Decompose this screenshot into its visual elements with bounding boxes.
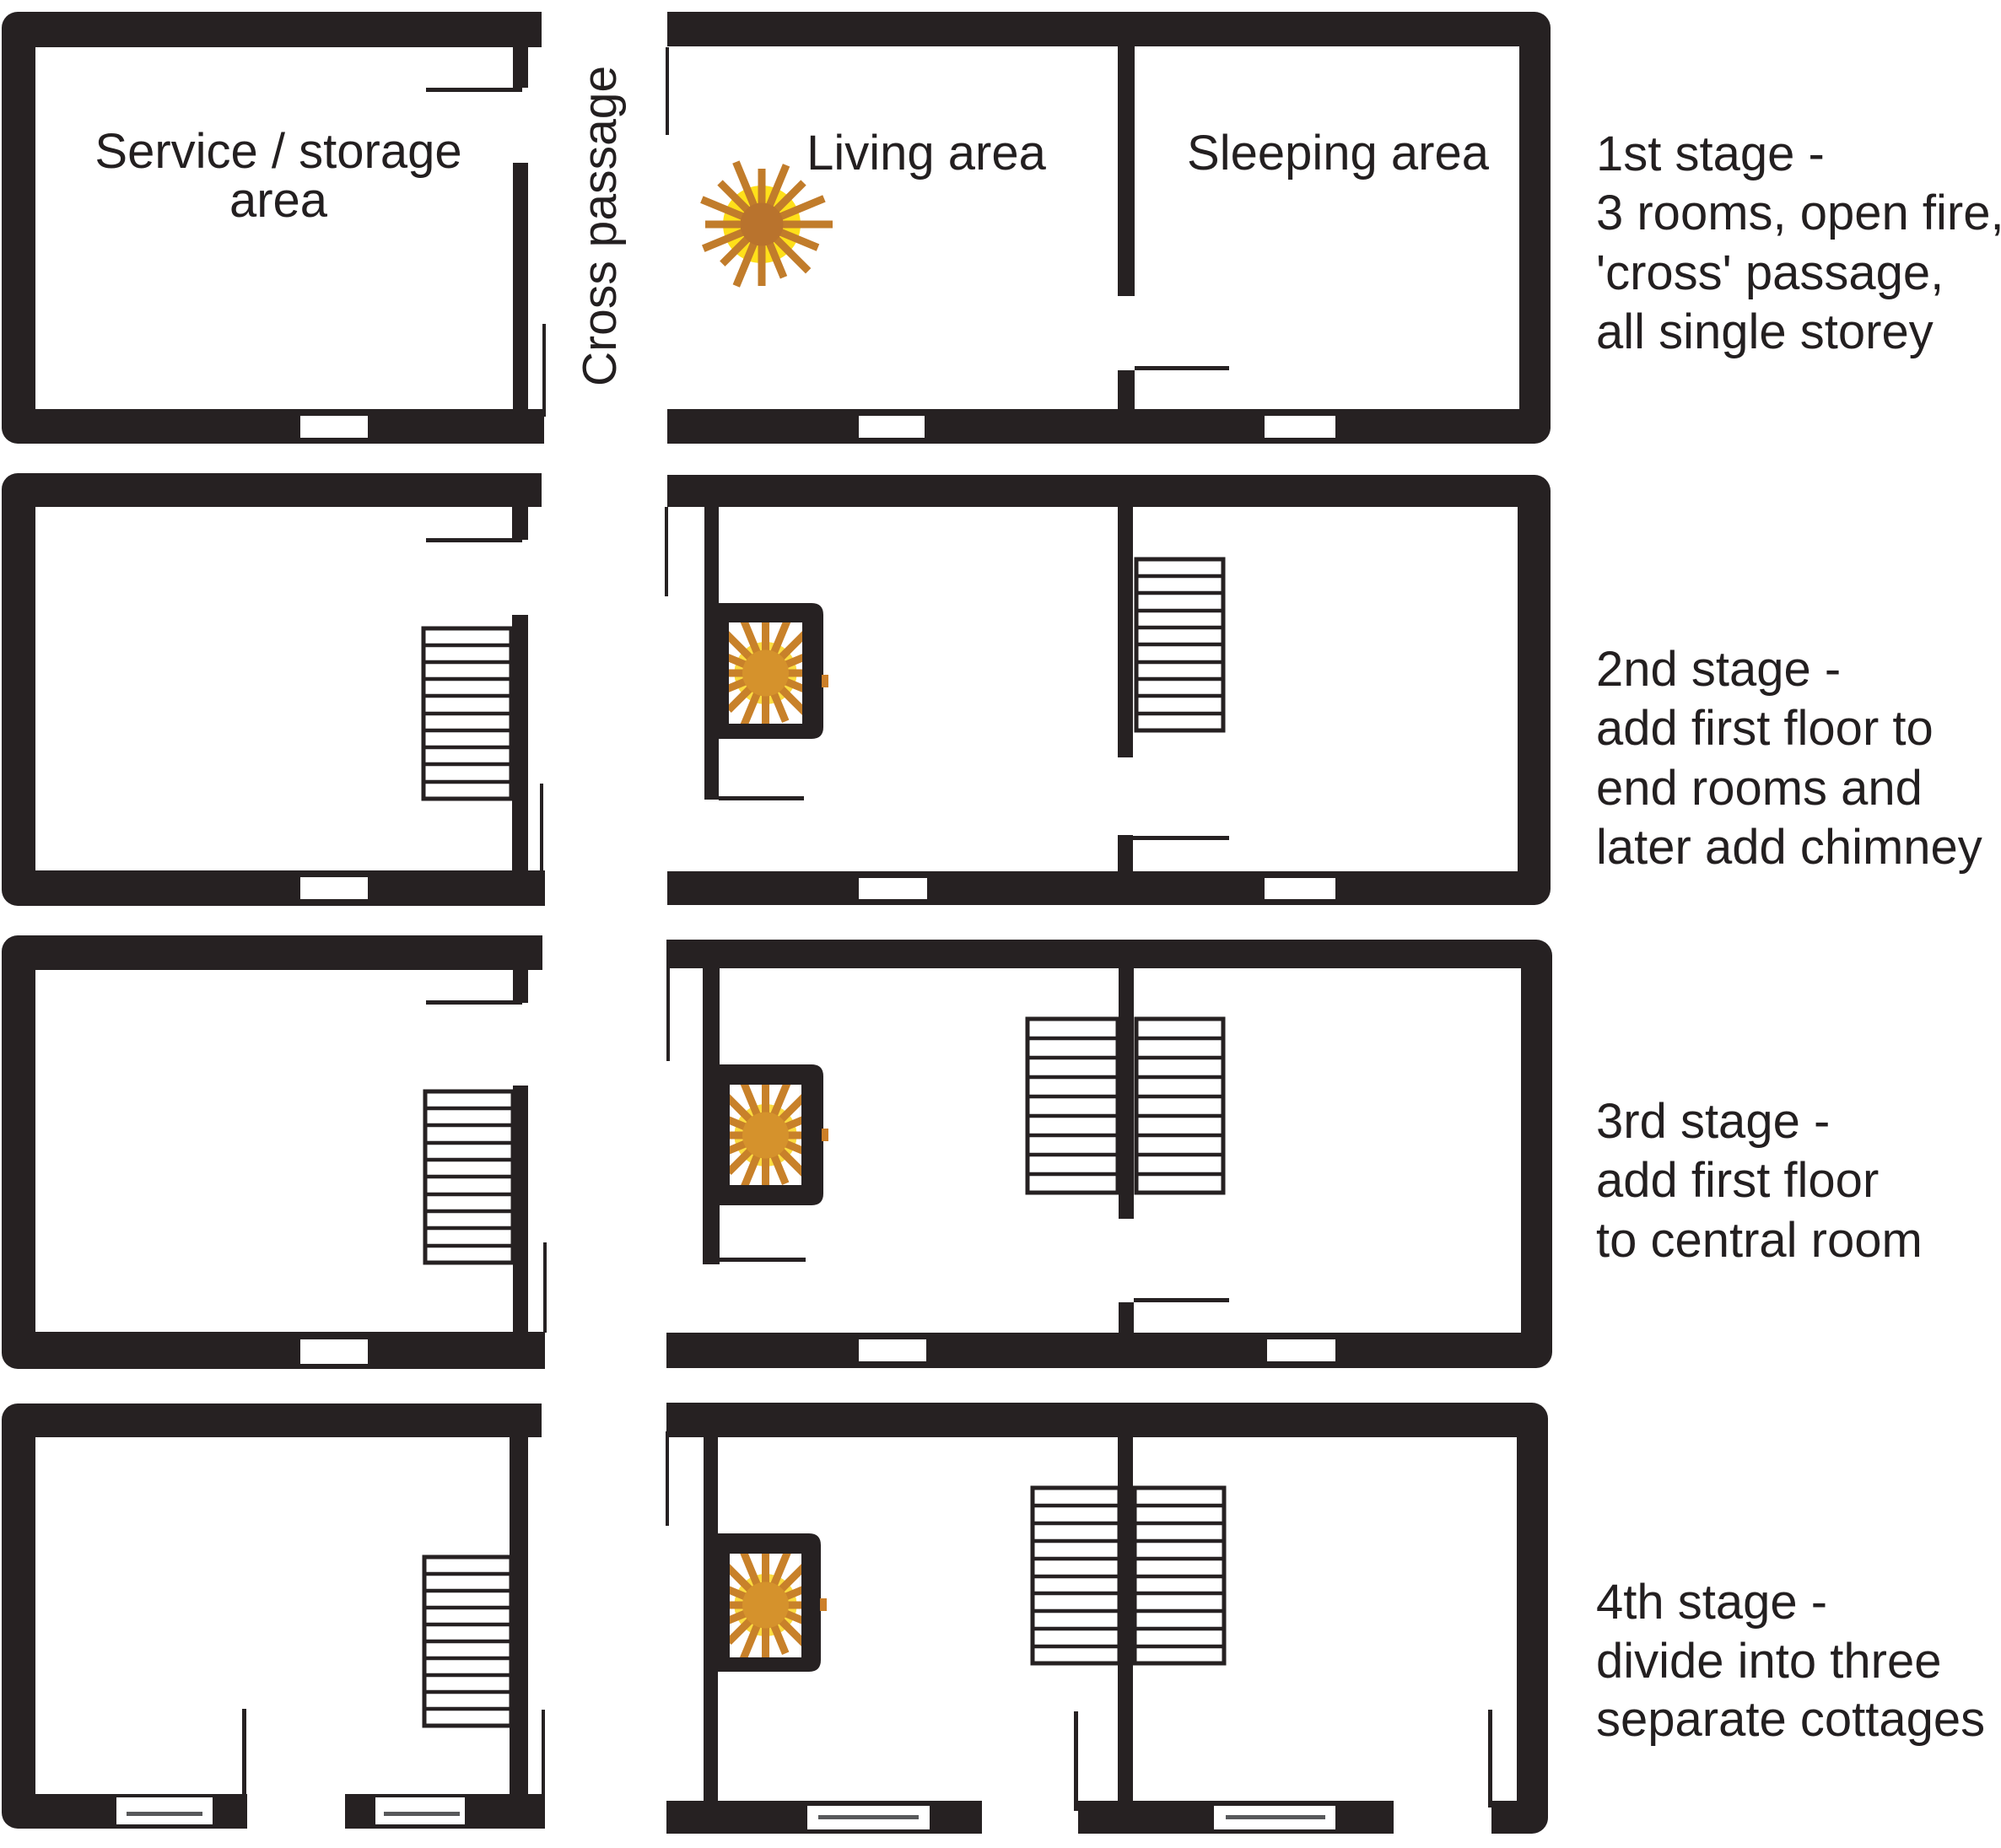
svg-text:Sleeping area: Sleeping area	[1187, 126, 1490, 180]
svg-text:3 rooms, open fire,: 3 rooms, open fire,	[1596, 186, 2001, 240]
svg-text:Service / storage: Service / storage	[94, 124, 461, 179]
svg-text:later add chimney: later add chimney	[1596, 820, 1982, 875]
svg-text:area: area	[229, 173, 328, 228]
svg-text:all single storey: all single storey	[1596, 304, 1934, 359]
svg-text:4th stage -: 4th stage -	[1596, 1575, 1827, 1630]
svg-text:add first floor: add first floor	[1596, 1153, 1879, 1208]
svg-text:add first floor to: add first floor to	[1596, 701, 1934, 756]
svg-text:end rooms and: end rooms and	[1596, 761, 1923, 816]
svg-text:divide into three: divide into three	[1596, 1634, 1941, 1689]
svg-text:3rd stage -: 3rd stage -	[1596, 1094, 1830, 1149]
svg-text:Cross passage: Cross passage	[573, 66, 627, 386]
svg-text:Living area: Living area	[806, 126, 1046, 180]
svg-text:'cross' passage,: 'cross' passage,	[1596, 245, 1944, 300]
svg-text:2nd stage -: 2nd stage -	[1596, 642, 1841, 697]
svg-text:1st stage -: 1st stage -	[1596, 127, 1825, 181]
svg-text:to central room: to central room	[1596, 1213, 1923, 1268]
svg-text:separate cottages: separate cottages	[1596, 1692, 1985, 1747]
